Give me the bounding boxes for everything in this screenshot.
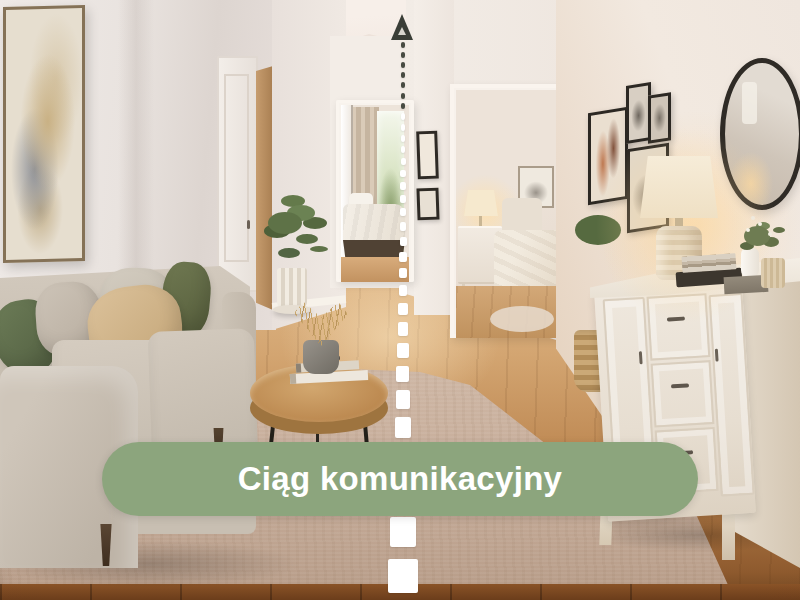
hallway-frame-top bbox=[416, 131, 439, 180]
abstract-wall-painting bbox=[3, 5, 85, 263]
decor-plant-pot bbox=[761, 258, 785, 288]
decor-small-plant bbox=[744, 226, 770, 246]
dresser-drawer bbox=[651, 360, 715, 428]
bedroom-center-interior bbox=[341, 105, 409, 282]
door-handle bbox=[247, 220, 250, 229]
wood-door-trim bbox=[256, 66, 273, 310]
apartment-interior-photo: Ciąg komunikacyjny bbox=[0, 0, 800, 600]
dresser-leg bbox=[722, 512, 735, 560]
hallway-frame-bottom bbox=[416, 188, 439, 221]
bedroom-rug bbox=[490, 306, 554, 332]
route-banner: Ciąg komunikacyjny bbox=[102, 442, 698, 516]
bedroom-floor bbox=[341, 257, 409, 282]
decor-white-jar bbox=[741, 248, 759, 278]
bedroom-right-interior bbox=[456, 90, 560, 338]
bedside-lamp-shade bbox=[464, 190, 498, 216]
hallway-plant-foliage bbox=[268, 212, 302, 234]
route-arrow-highlight bbox=[398, 27, 406, 35]
table-lamp-shade bbox=[640, 156, 718, 218]
route-banner-label: Ciąg komunikacyjny bbox=[238, 460, 563, 498]
door-panel bbox=[224, 74, 249, 262]
hallway-plant-pot bbox=[277, 268, 307, 308]
bed-duvet bbox=[343, 204, 405, 244]
mirror-reflection bbox=[742, 82, 757, 124]
